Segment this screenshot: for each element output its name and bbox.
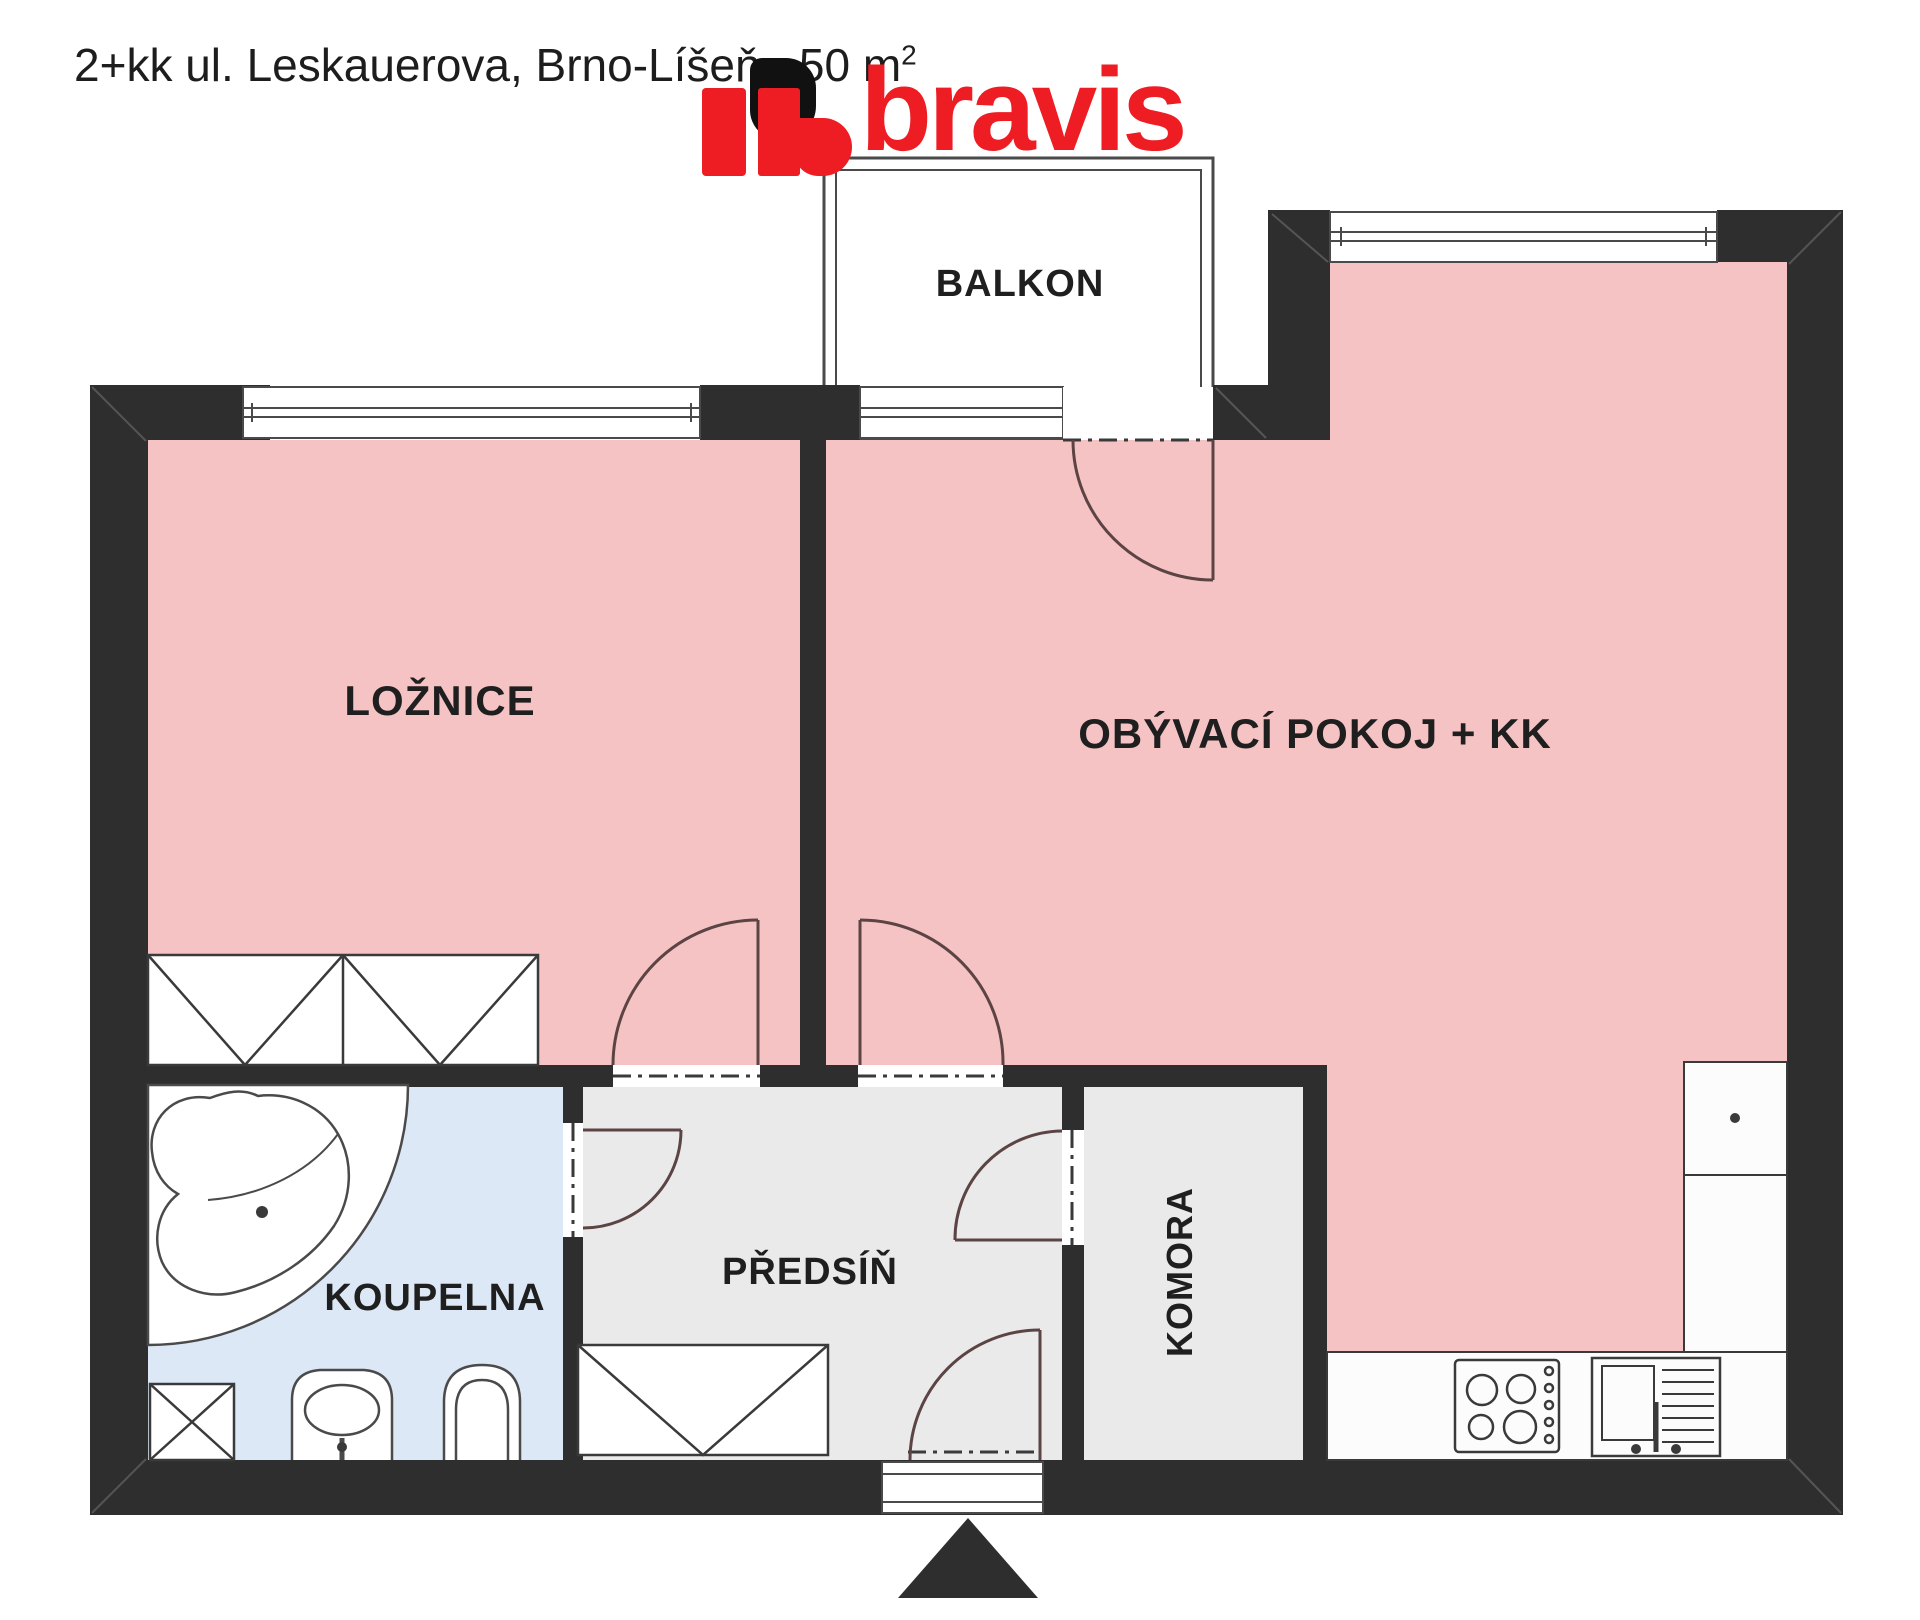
wall-left: [90, 385, 148, 1515]
bedroom-window: [243, 387, 700, 438]
wall-top-pillar: [700, 385, 860, 440]
wall-hallway-top-a: [148, 1065, 613, 1087]
hallway-label: PŘEDSÍŇ: [722, 1249, 898, 1293]
entrance-arrow-icon: [898, 1518, 1038, 1598]
wall-right: [1787, 210, 1843, 1515]
storage-label: KOMORA: [1159, 1187, 1200, 1357]
wall-bedroom-living: [800, 440, 826, 1065]
logo-wordmark: bravis: [860, 46, 1184, 176]
bathtub-drain-icon: [256, 1206, 268, 1218]
wall-storage-top: [1003, 1065, 1327, 1087]
washbasin-tap-icon: [337, 1442, 347, 1452]
toilet: [444, 1365, 520, 1460]
kitchen-counter-bottom: [1327, 1352, 1787, 1460]
wall-step-vertical: [1268, 210, 1330, 440]
logo-red-bar-icon: [702, 88, 746, 176]
wall-bath-hall-upper: [563, 1085, 583, 1123]
wall-top-right-corner: [1717, 210, 1843, 262]
logo-b-bowl-icon: [794, 118, 852, 176]
bedroom-wardrobe: [148, 955, 538, 1065]
balcony-label: BALKON: [936, 263, 1105, 305]
bravis-logo: bravis: [694, 52, 1214, 182]
washbasin: [292, 1370, 392, 1460]
floorplan-page: 2+kk ul. Leskauerova, Brno-Líšeň , 50 m2…: [0, 0, 1920, 1620]
floorplan-drawing: BALKON: [0, 0, 1920, 1620]
living-window: [860, 387, 1063, 438]
entrance-threshold: [882, 1462, 1043, 1513]
wall-hall-storage-lower: [1062, 1245, 1084, 1460]
living-top-window: [1330, 212, 1717, 262]
bathroom-label: KOUPELNA: [324, 1277, 545, 1319]
counter-dot-icon: [1730, 1113, 1740, 1123]
hallway-wardrobe: [578, 1345, 828, 1455]
wall-hallway-top-b: [760, 1065, 858, 1087]
balcony-door-gap: [1063, 387, 1213, 440]
wall-storage-right: [1303, 1085, 1327, 1460]
wall-hall-storage-upper: [1062, 1085, 1084, 1130]
living-room-label: OBÝVACÍ POKOJ + KK: [1078, 710, 1551, 757]
bedroom-label: LOŽNICE: [344, 676, 535, 724]
installation-shaft: [150, 1384, 234, 1460]
